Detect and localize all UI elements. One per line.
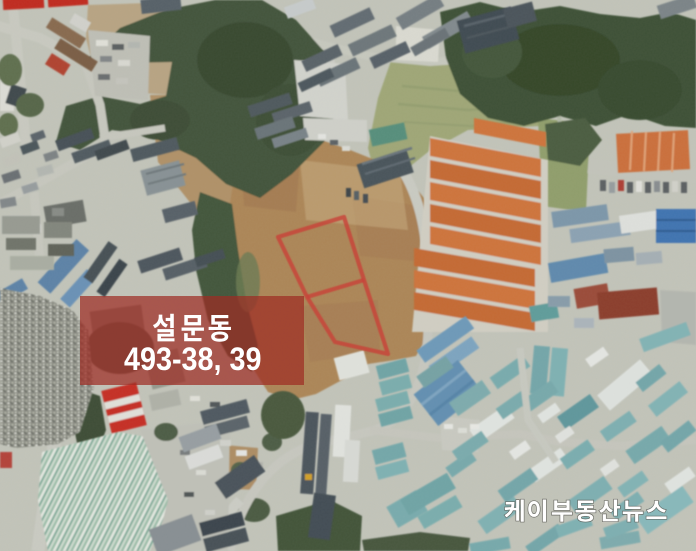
svg-text:493-38, 39: 493-38, 39 xyxy=(124,341,262,377)
